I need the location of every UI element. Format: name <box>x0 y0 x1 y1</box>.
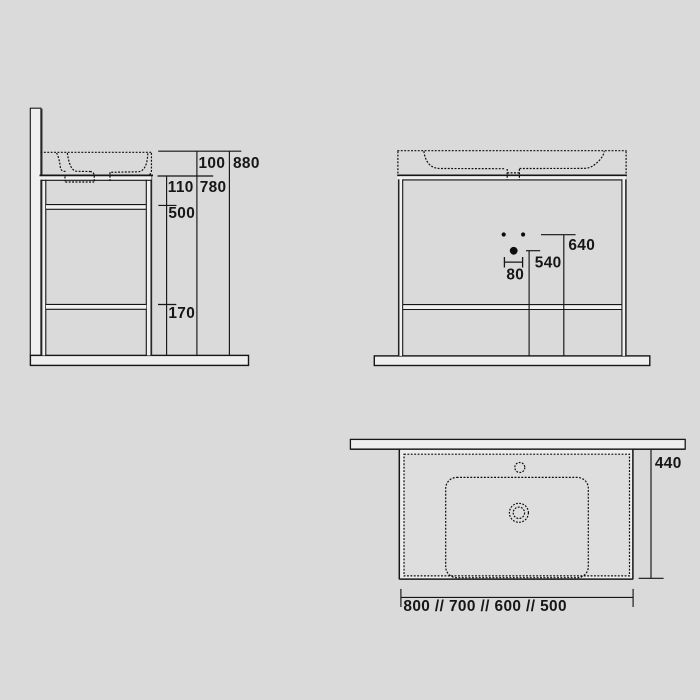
svg-text:110: 110 <box>168 179 194 196</box>
svg-text:80: 80 <box>506 267 524 284</box>
svg-text:500: 500 <box>168 205 195 222</box>
svg-text:170: 170 <box>168 305 195 322</box>
svg-text:100: 100 <box>199 155 226 172</box>
svg-text:800 // 700 // 600 // 500: 800 // 700 // 600 // 500 <box>403 598 567 615</box>
svg-text:440: 440 <box>655 455 682 472</box>
svg-text:780: 780 <box>200 179 227 196</box>
svg-text:880: 880 <box>233 155 260 172</box>
svg-text:640: 640 <box>568 237 595 254</box>
svg-text:540: 540 <box>535 254 562 271</box>
